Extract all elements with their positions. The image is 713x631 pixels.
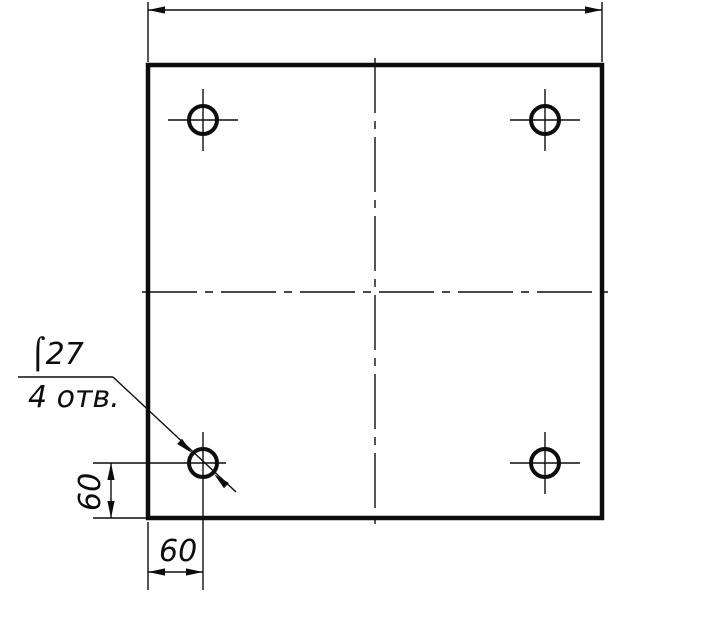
- hole-bottom-right: [510, 432, 580, 494]
- hole-top-right: [510, 89, 580, 151]
- hole-diameter-label: ⌠27: [30, 336, 84, 372]
- dimension-arrow-left: [148, 6, 165, 13]
- vertical-dimension-value: 60: [73, 473, 108, 511]
- vertical-offset-dimension: 60: [73, 463, 146, 518]
- horizontal-offset-dimension: 60: [148, 522, 203, 590]
- hole-top-left: [168, 89, 238, 151]
- dimension-arrow-right: [585, 6, 602, 13]
- dimension-arrow-right: [186, 568, 203, 575]
- top-overall-dimension: [148, 2, 602, 62]
- dimension-arrow-top: [107, 463, 114, 480]
- drawing-canvas: ⌠27 4 отв. 60 60: [0, 0, 713, 631]
- horizontal-dimension-value: 60: [159, 534, 197, 569]
- leader-diagonal-line: [113, 377, 236, 492]
- dimension-arrow-left: [148, 568, 165, 575]
- plate-outline: [148, 65, 602, 518]
- dimension-arrow-bottom: [107, 501, 114, 518]
- hole-count-label: 4 отв.: [28, 380, 120, 415]
